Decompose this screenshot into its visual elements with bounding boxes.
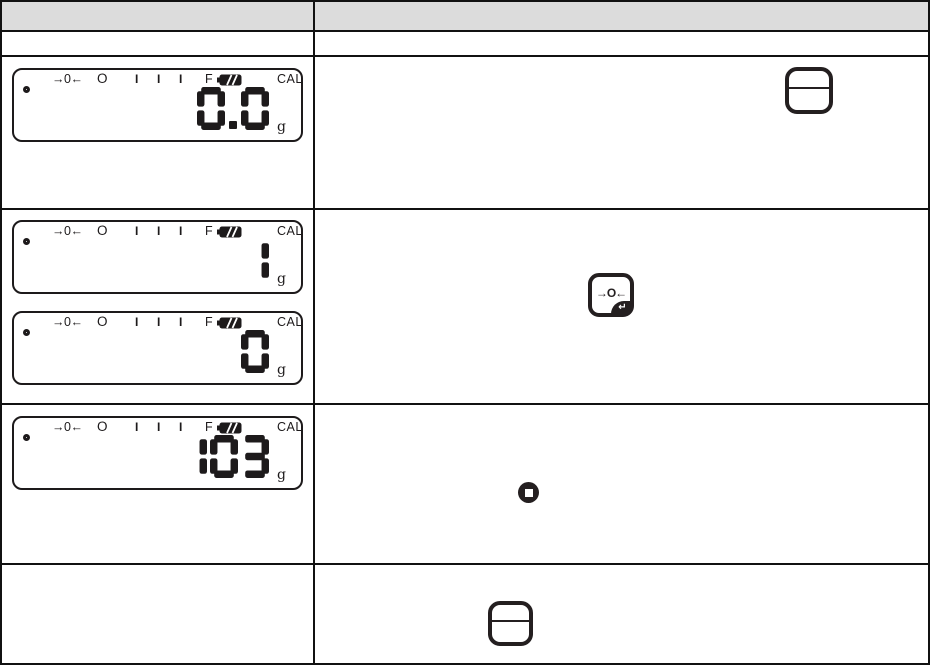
o-indicator: O [97, 72, 108, 86]
display-cell-3: →0← O I I I F CAL g [2, 405, 315, 565]
cal-indicator: CAL [277, 72, 303, 86]
battery-icon [217, 422, 242, 434]
range-bar-icon: I [135, 315, 138, 329]
o-indicator: O [97, 420, 108, 434]
range-bar-icon: I [179, 315, 182, 329]
range-bar-icon: I [135, 420, 138, 434]
range-bar-icon: I [157, 420, 160, 434]
lcd-display-4: →0← O I I I F CAL g [12, 416, 303, 490]
range-bar-icon: I [179, 224, 182, 238]
f-indicator: F [205, 224, 213, 238]
zero-indicator: →0← [52, 420, 82, 434]
zero-key-label: →O← [596, 286, 626, 300]
weight-readout [197, 87, 269, 130]
weight-readout [241, 239, 269, 282]
o-indicator: O [97, 315, 108, 329]
empty-cell [2, 32, 315, 57]
stop-print-symbol-icon [518, 482, 539, 503]
battery-icon [217, 226, 242, 238]
f-indicator: F [205, 315, 213, 329]
enter-corner-icon: ↵ [611, 301, 632, 315]
stability-circle-icon [23, 238, 30, 245]
instruction-table: →0← O I I I F CAL g [0, 0, 930, 665]
display-cell-1: →0← O I I I F CAL g [2, 57, 315, 210]
cal-indicator: CAL [277, 315, 303, 329]
unit-label: g [277, 120, 286, 134]
on-off-key-icon [488, 601, 533, 646]
zero-indicator: →0← [52, 72, 82, 86]
range-bar-icon: I [157, 315, 160, 329]
f-indicator: F [205, 72, 213, 86]
zero-indicator: →0← [52, 224, 82, 238]
stability-circle-icon [23, 329, 30, 336]
cal-indicator: CAL [277, 420, 303, 434]
operation-cell-1 [315, 57, 928, 210]
unit-label: g [277, 468, 286, 482]
weight-readout [241, 330, 269, 373]
o-indicator: O [97, 224, 108, 238]
display-cell-2: →0← O I I I F CAL g →0← O [2, 210, 315, 405]
key-line [788, 87, 830, 89]
zero-enter-key-icon: →O← ↵ [588, 273, 634, 317]
unit-label: g [277, 272, 286, 286]
unit-label: g [277, 363, 286, 377]
operation-cell-3 [315, 405, 928, 565]
stability-circle-icon [23, 86, 30, 93]
range-bar-icon: I [135, 72, 138, 86]
battery-icon [217, 74, 242, 86]
range-bar-icon: I [157, 72, 160, 86]
lcd-display-2: →0← O I I I F CAL g [12, 220, 303, 294]
on-off-key-icon [785, 67, 833, 114]
header-cell-display [2, 2, 315, 32]
f-indicator: F [205, 420, 213, 434]
weight-readout [179, 435, 269, 478]
header-cell-operation [315, 2, 928, 32]
zero-indicator: →0← [52, 315, 82, 329]
empty-cell [315, 32, 928, 57]
range-bar-icon: I [179, 420, 182, 434]
lcd-display-3: →0← O I I I F CAL g [12, 311, 303, 385]
range-bar-icon: I [179, 72, 182, 86]
inner-square [525, 489, 533, 497]
operation-cell-2: →O← ↵ [315, 210, 928, 405]
enter-symbol: ↵ [618, 303, 626, 313]
empty-cell [2, 565, 315, 663]
manual-page: →0← O I I I F CAL g [0, 0, 930, 665]
key-line [491, 620, 530, 622]
operation-cell-4 [315, 565, 928, 663]
lcd-display-1: →0← O I I I F CAL g [12, 68, 303, 142]
range-bar-icon: I [135, 224, 138, 238]
cal-indicator: CAL [277, 224, 303, 238]
range-bar-icon: I [157, 224, 160, 238]
stability-circle-icon [23, 434, 30, 441]
battery-icon [217, 317, 242, 329]
